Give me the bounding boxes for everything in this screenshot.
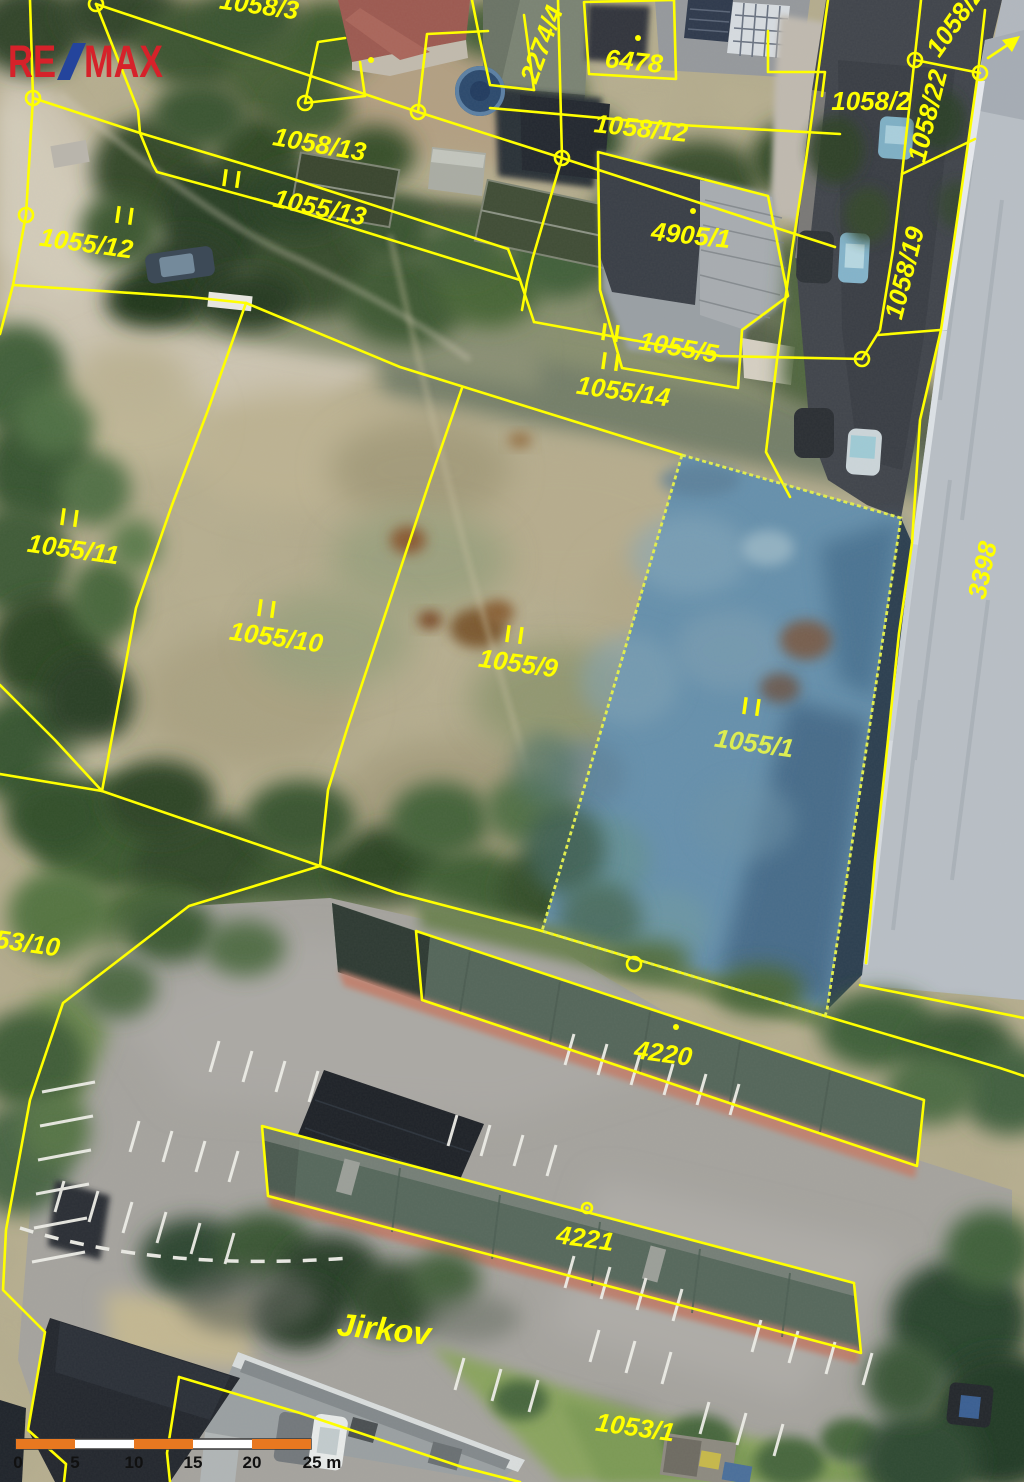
svg-text:1058/2: 1058/2	[831, 86, 911, 116]
svg-text:10: 10	[125, 1453, 144, 1472]
svg-text:15: 15	[184, 1453, 203, 1472]
svg-text:0: 0	[13, 1453, 22, 1472]
svg-text:20: 20	[243, 1453, 262, 1472]
svg-text:RE: RE	[8, 36, 56, 87]
svg-text:25 m: 25 m	[303, 1453, 342, 1472]
svg-text:6478: 6478	[604, 43, 665, 79]
svg-text:MAX: MAX	[84, 36, 163, 87]
svg-text:5: 5	[70, 1453, 79, 1472]
